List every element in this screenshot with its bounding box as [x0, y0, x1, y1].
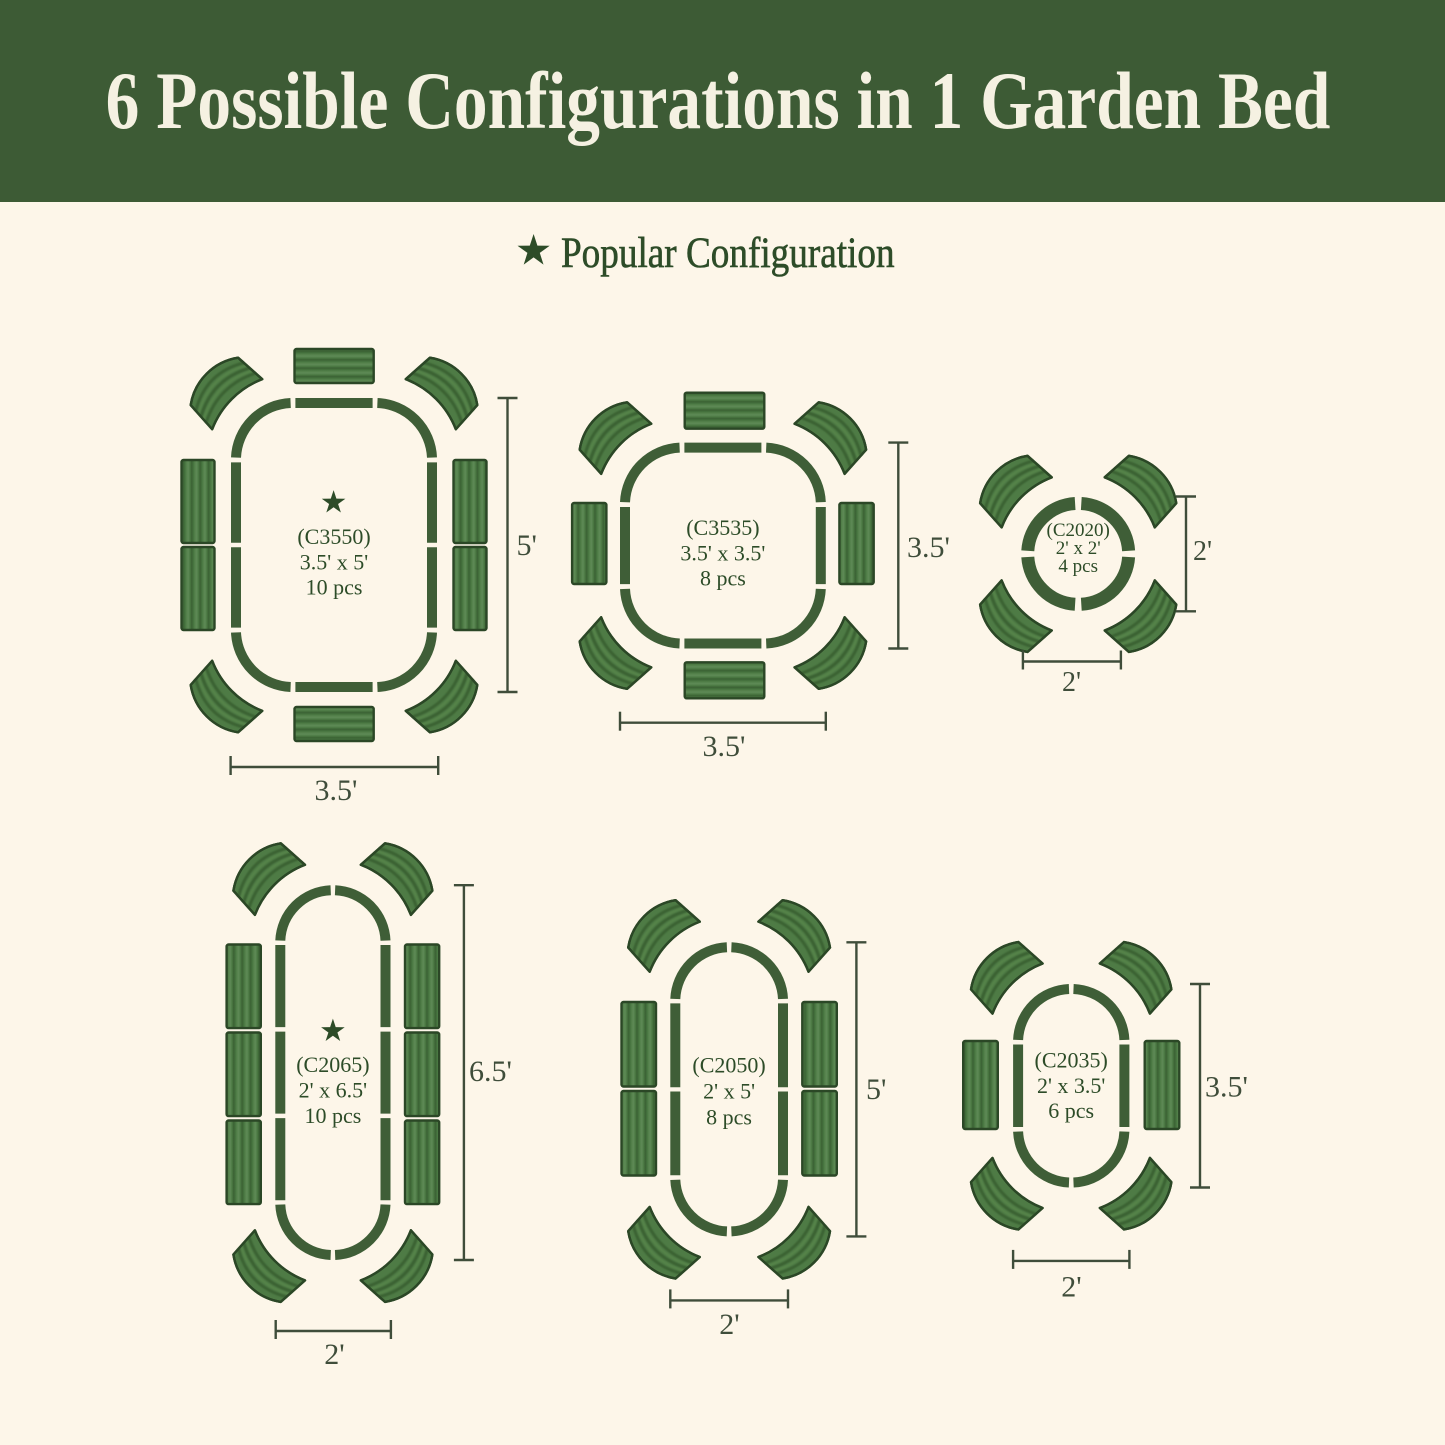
svg-text:3.5' x 5': 3.5' x 5': [300, 549, 368, 574]
svg-text:3.5': 3.5': [1205, 1071, 1248, 1104]
svg-text:3.5': 3.5': [907, 531, 950, 564]
svg-text:6 pcs: 6 pcs: [1048, 1098, 1094, 1123]
svg-text:10 pcs: 10 pcs: [306, 575, 363, 600]
svg-text:2' x 6.5': 2' x 6.5': [299, 1078, 367, 1103]
svg-text:3.5' x 3.5': 3.5' x 3.5': [680, 540, 765, 565]
svg-text:3.5': 3.5': [703, 730, 746, 763]
svg-text:10 pcs: 10 pcs: [304, 1103, 361, 1128]
svg-text:(C2035): (C2035): [1035, 1048, 1108, 1073]
svg-text:Popular Configuration: Popular Configuration: [561, 228, 895, 276]
svg-text:(C3550): (C3550): [297, 524, 370, 549]
svg-text:5': 5': [866, 1073, 886, 1106]
svg-text:2' x 5': 2' x 5': [703, 1079, 755, 1104]
svg-text:8 pcs: 8 pcs: [700, 566, 746, 591]
svg-text:6.5': 6.5': [469, 1055, 512, 1088]
svg-text:2' x 3.5': 2' x 3.5': [1037, 1073, 1105, 1098]
svg-text:5': 5': [517, 529, 537, 562]
svg-text:3.5': 3.5': [315, 774, 358, 807]
svg-text:2': 2': [719, 1308, 739, 1341]
svg-text:8 pcs: 8 pcs: [706, 1105, 752, 1130]
svg-text:2': 2': [324, 1338, 344, 1371]
svg-text:(C2065): (C2065): [296, 1052, 369, 1077]
svg-text:2': 2': [1061, 1271, 1081, 1304]
svg-text:(C3535): (C3535): [686, 515, 759, 540]
svg-text:2': 2': [1193, 536, 1212, 567]
svg-text:(C2050): (C2050): [692, 1053, 765, 1078]
svg-text:2': 2': [1062, 667, 1081, 698]
svg-text:4 pcs: 4 pcs: [1058, 556, 1098, 577]
